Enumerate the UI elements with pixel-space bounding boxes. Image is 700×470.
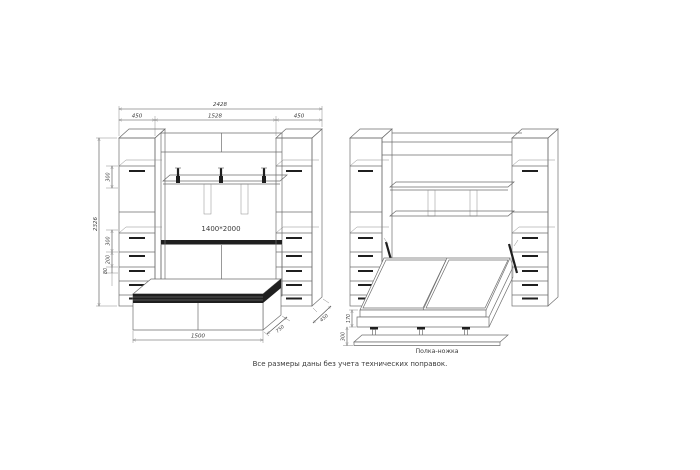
door-handle	[358, 237, 373, 239]
drawer-handle	[286, 255, 302, 257]
dim-drawer-gap: 200	[106, 255, 112, 264]
drawer-handle	[358, 255, 373, 257]
right-drawing: 170 300 Полка-ножка	[341, 129, 559, 355]
bed-front-panel: 1400*2000	[161, 225, 282, 245]
side-dimensions: 2326 300 300 200 80	[93, 138, 118, 306]
drawer-handle	[129, 270, 145, 272]
dim-platform-height: 170	[346, 314, 352, 323]
drawer-handle	[522, 270, 538, 272]
right-column	[512, 129, 558, 306]
wall-shelves	[390, 182, 514, 216]
door-handle	[129, 170, 145, 172]
drawer-handle	[522, 255, 538, 257]
dim-column-depth: 450	[319, 313, 330, 324]
top-dimensions: 2428 450 1528 450	[119, 102, 322, 136]
dim-middle-gap: 300	[106, 236, 112, 245]
bed-front-rail	[161, 240, 282, 245]
door-handle	[522, 237, 538, 239]
bridge-shelf	[382, 133, 522, 155]
dim-left-column-width: 450	[132, 114, 143, 120]
drawer-handle	[358, 284, 373, 286]
dim-base-height: 300	[341, 332, 347, 341]
dim-center-width: 1528	[208, 114, 222, 120]
blueprint-page: 1400*2000	[0, 0, 700, 470]
bed-size-label: 1400*2000	[201, 225, 240, 233]
drawer-handle	[286, 284, 302, 286]
dim-bench-width: 1500	[191, 334, 205, 340]
door-handle	[522, 170, 538, 172]
drawer-handle	[286, 298, 302, 300]
leg-shelf-board	[354, 335, 508, 346]
footer-note: Все размеры даны без учета технических п…	[0, 360, 700, 368]
dim-plinth: 80	[103, 268, 109, 274]
drawer-handle	[129, 255, 145, 257]
drawer-handle	[522, 298, 538, 300]
left-drawing: 1400*2000	[93, 102, 331, 343]
door-handle	[358, 170, 373, 172]
drawer-handle	[286, 270, 302, 272]
dim-right-column-width: 450	[294, 114, 305, 120]
door-handle	[129, 237, 145, 239]
drawer-handle	[522, 284, 538, 286]
hanging-shelf	[163, 168, 287, 214]
door-handle	[286, 170, 302, 172]
bench-cushion-band	[133, 294, 263, 303]
technical-drawing: 1400*2000	[0, 0, 700, 470]
bench	[133, 279, 281, 330]
door-handle	[286, 237, 302, 239]
drawer-handle	[358, 270, 373, 272]
center-section: 1400*2000	[161, 133, 287, 296]
dim-total-height: 2326	[93, 217, 99, 231]
open-bed	[354, 258, 513, 346]
right-column	[276, 129, 322, 306]
dim-upper-gap: 300	[106, 172, 112, 181]
dim-total-width: 2428	[213, 102, 227, 108]
leg-shelf-label: Полка-ножка	[415, 348, 458, 355]
